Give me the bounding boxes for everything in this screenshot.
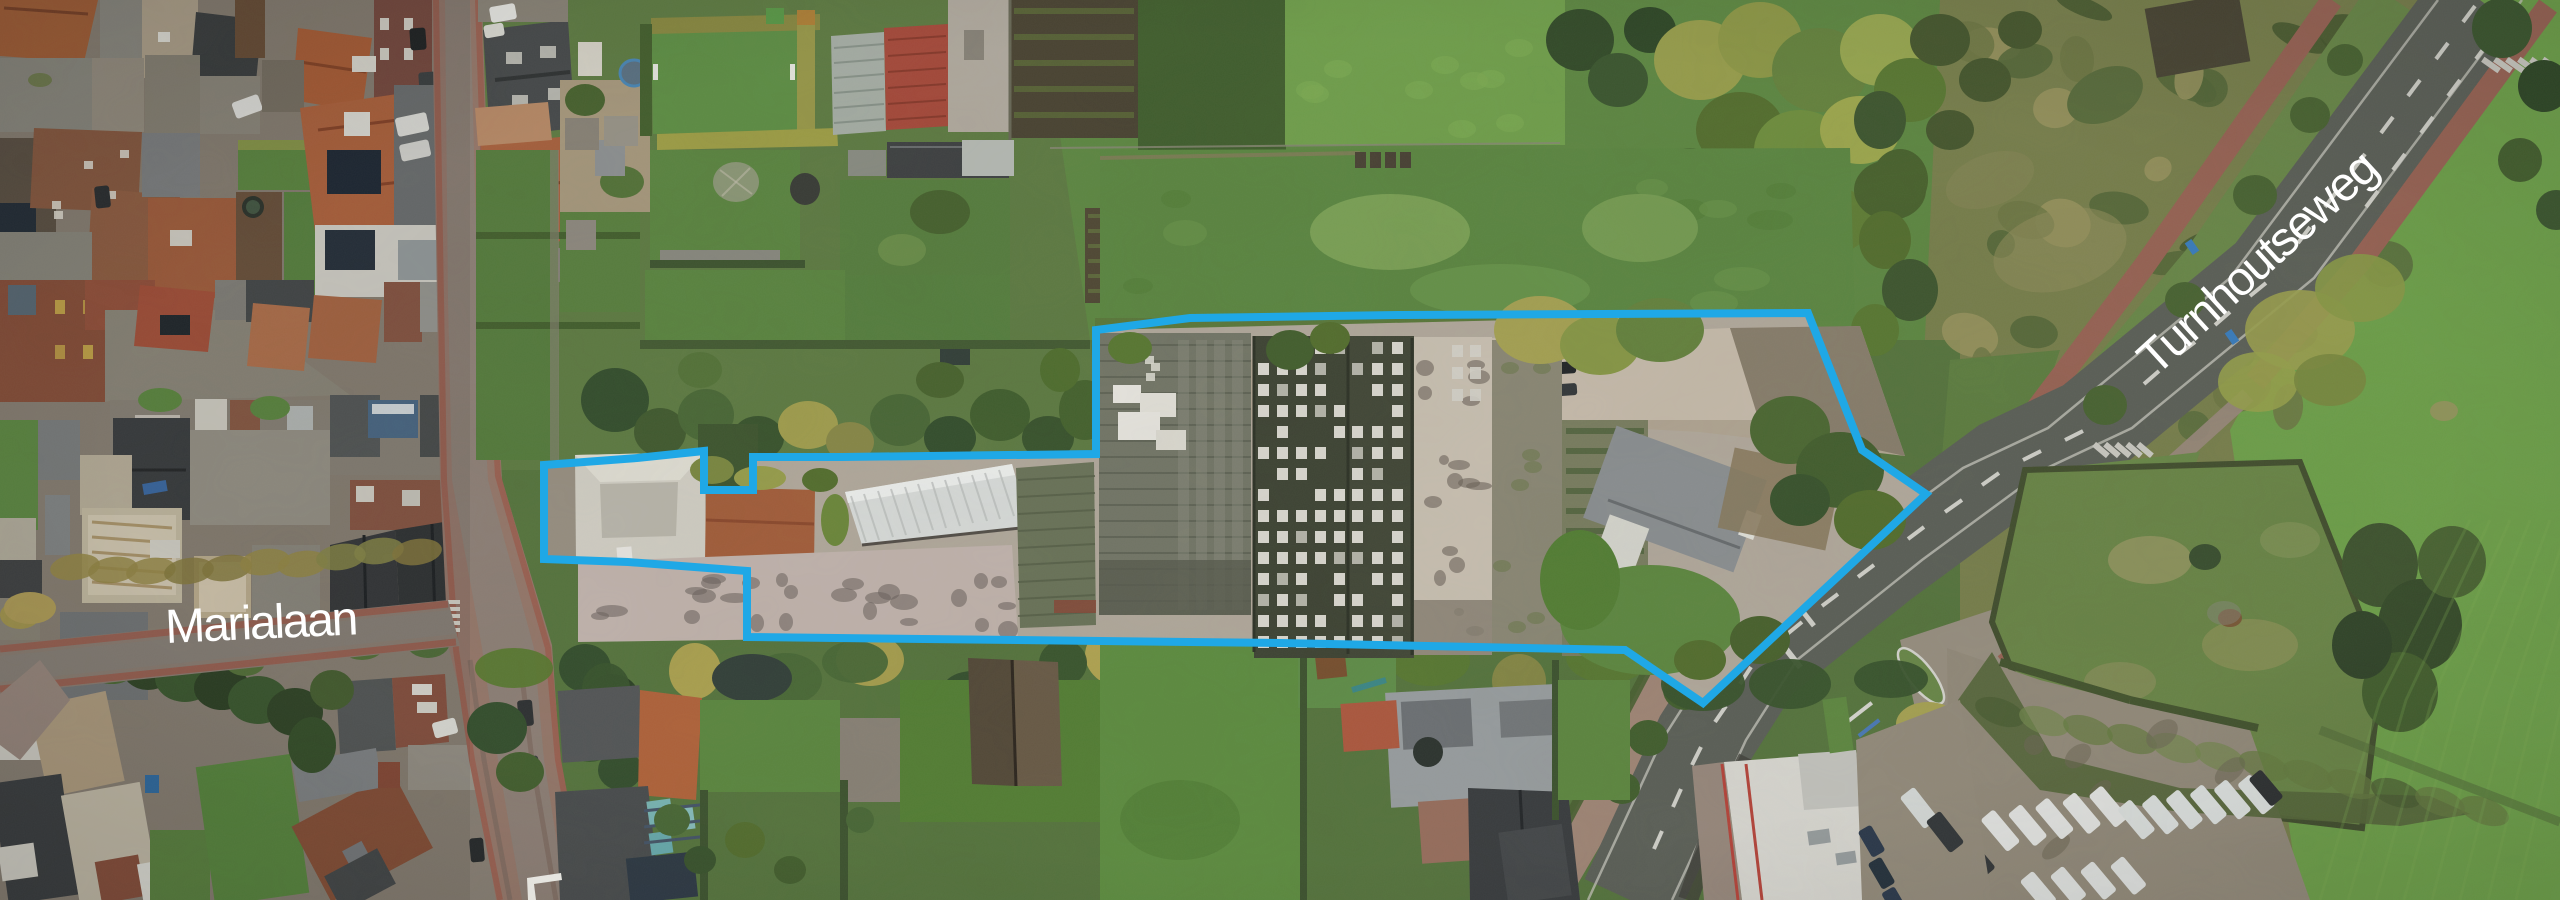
svg-text:Marialaan: Marialaan [164, 592, 357, 654]
